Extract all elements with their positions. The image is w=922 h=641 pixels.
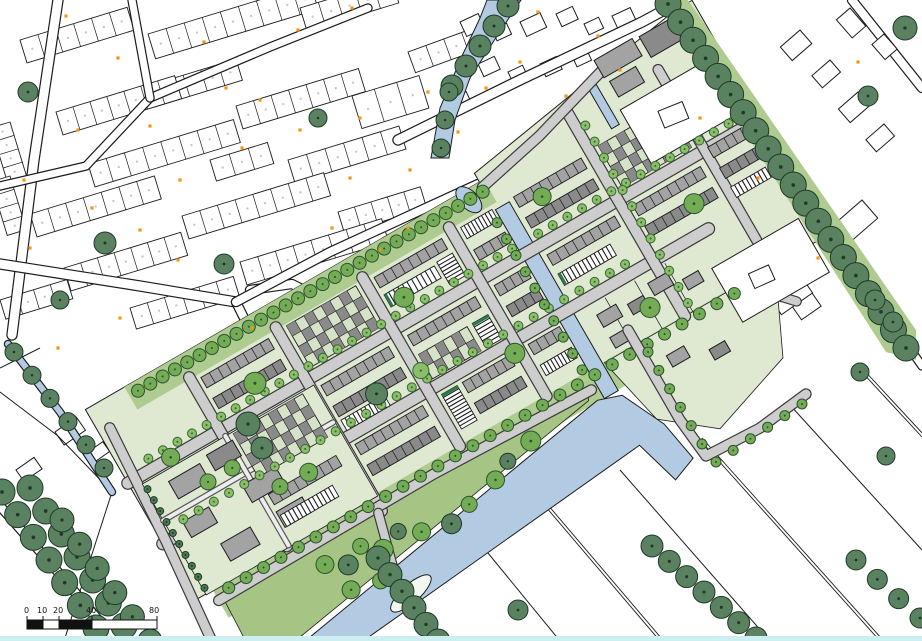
scalebar-label: 80	[149, 606, 159, 615]
masterplan-map: 0 10 20 40 80	[0, 0, 922, 641]
scalebar-label: 10	[37, 606, 47, 615]
scalebar-label: 0	[24, 606, 29, 615]
scalebar-label: 40	[86, 606, 96, 615]
scalebar-label: 20	[53, 606, 63, 615]
masterplan-canvas[interactable]	[0, 0, 922, 641]
frame	[0, 636, 922, 641]
